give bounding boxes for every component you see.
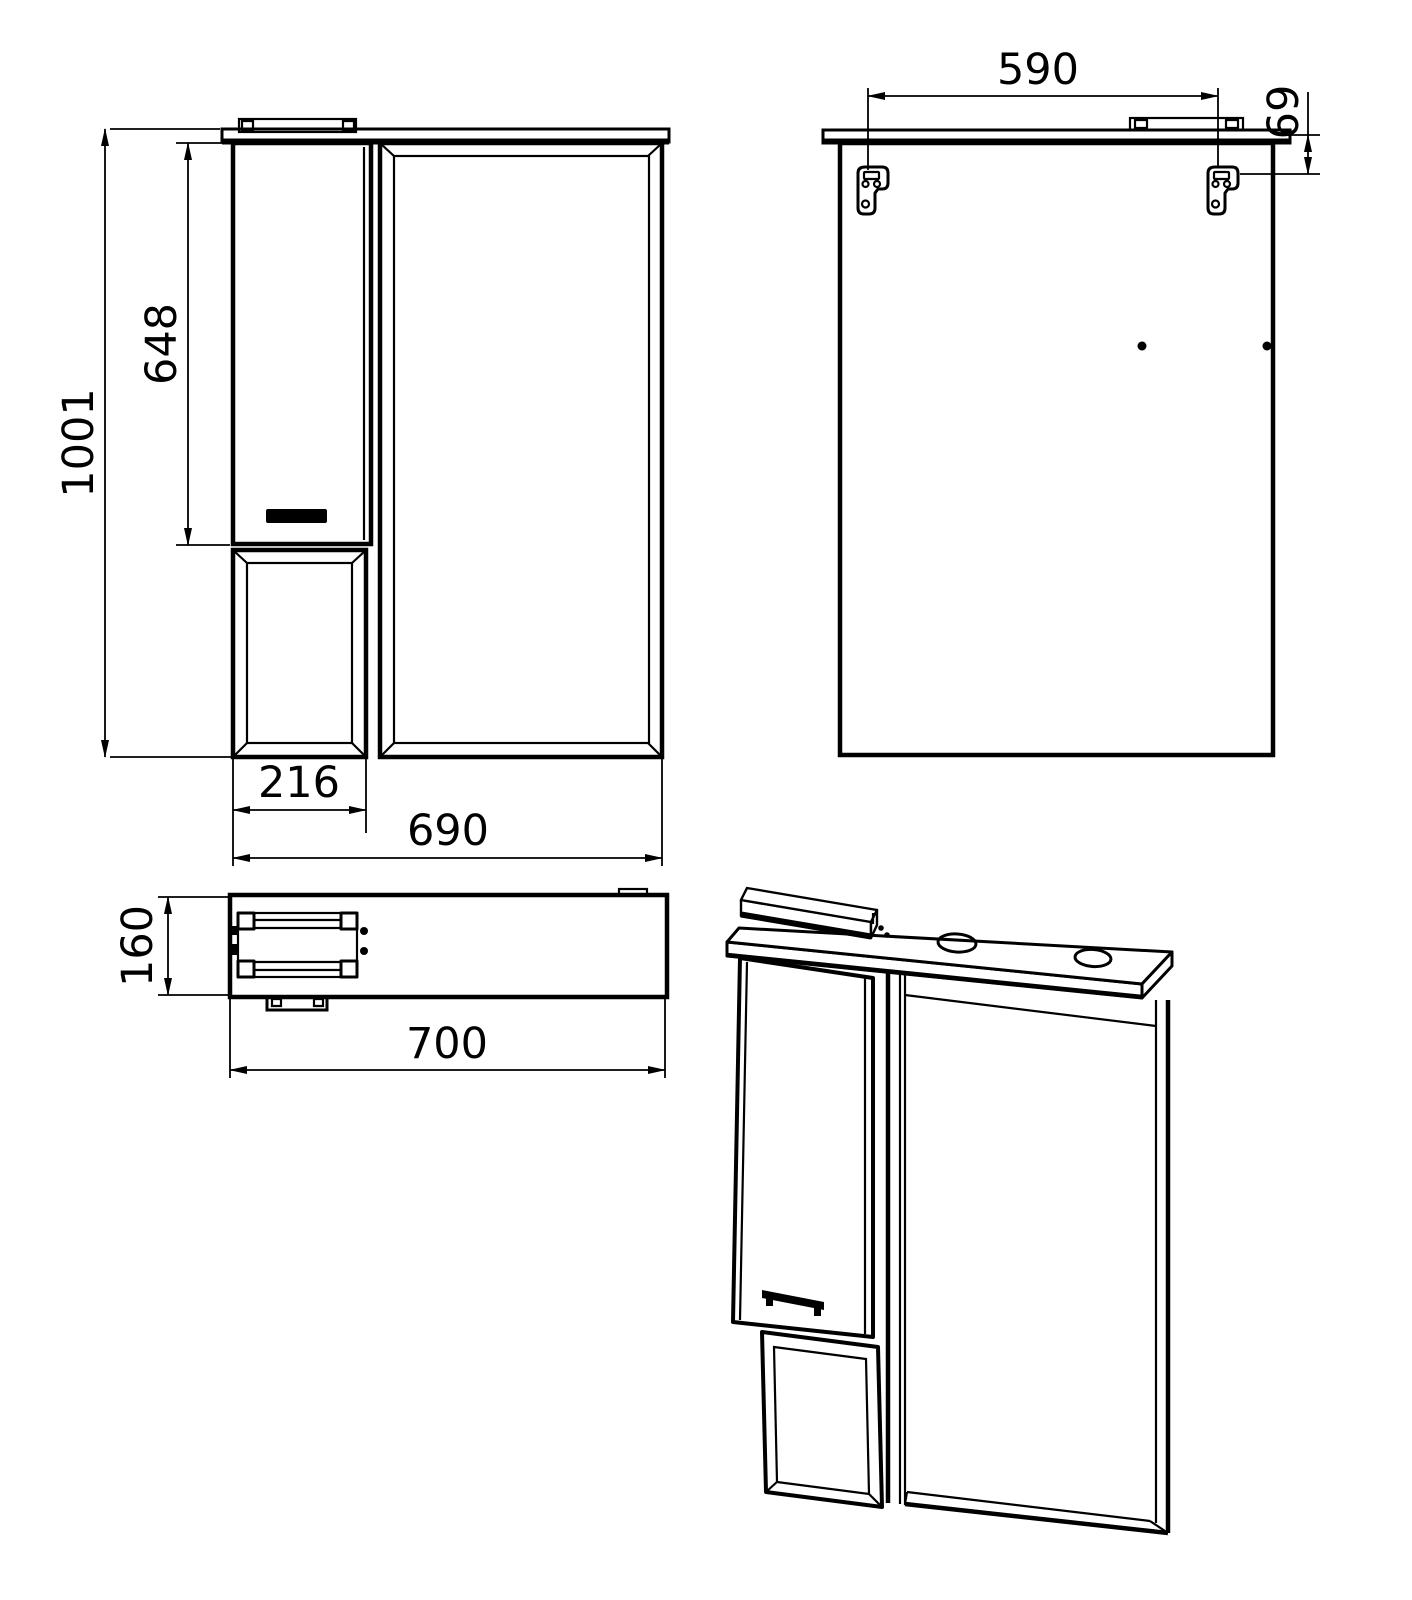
iso-door (733, 958, 873, 1337)
dim-total-height: 1001 (54, 129, 231, 757)
dim-label-total-height: 1001 (54, 388, 104, 497)
wall-hanger-right (1208, 167, 1238, 214)
dim-hanger-spacing: 590 (868, 45, 1218, 170)
iso-lower-frame (762, 1332, 882, 1507)
back-screw-dot-right (1263, 342, 1272, 351)
dim-door-height: 648 (137, 143, 230, 545)
front-view: 1001 648 216 690 (54, 119, 669, 866)
top-view: 160 700 (113, 889, 667, 1078)
dim-label-hanger-spacing: 590 (997, 45, 1079, 95)
front-door (233, 143, 371, 544)
back-view: 590 69 (823, 45, 1320, 755)
dim-cabinet-width: 216 (233, 758, 366, 833)
top-screw-dot-2 (360, 947, 368, 955)
isometric-view (727, 888, 1172, 1533)
iso-mirror (905, 995, 1168, 1533)
back-lamp-box (1130, 118, 1243, 130)
dim-depth: 160 (113, 897, 228, 995)
dim-label-cabinet-width: 216 (258, 758, 340, 808)
top-screw-dot-1 (360, 927, 368, 935)
mirror-cabinet-drawing: 1001 648 216 690 (0, 0, 1412, 1600)
dim-label-overall-width: 700 (406, 1019, 488, 1069)
front-mirror (380, 143, 662, 757)
dim-label-depth: 160 (113, 905, 163, 987)
back-body-panel (840, 143, 1273, 755)
dim-label-door-height: 648 (137, 303, 187, 385)
back-screw-dot-left (1138, 342, 1147, 351)
iso-center-divider (888, 970, 905, 1505)
dim-label-hanger-offset: 69 (1259, 85, 1309, 140)
front-door-handle (266, 509, 327, 523)
technical-drawing-page: 1001 648 216 690 (0, 0, 1412, 1600)
dim-label-total-width: 690 (407, 806, 489, 856)
wall-hanger-left (858, 167, 888, 214)
top-lamp-assembly (231, 913, 357, 977)
front-lower-frame (233, 550, 366, 757)
top-shelf-plan (230, 895, 667, 997)
